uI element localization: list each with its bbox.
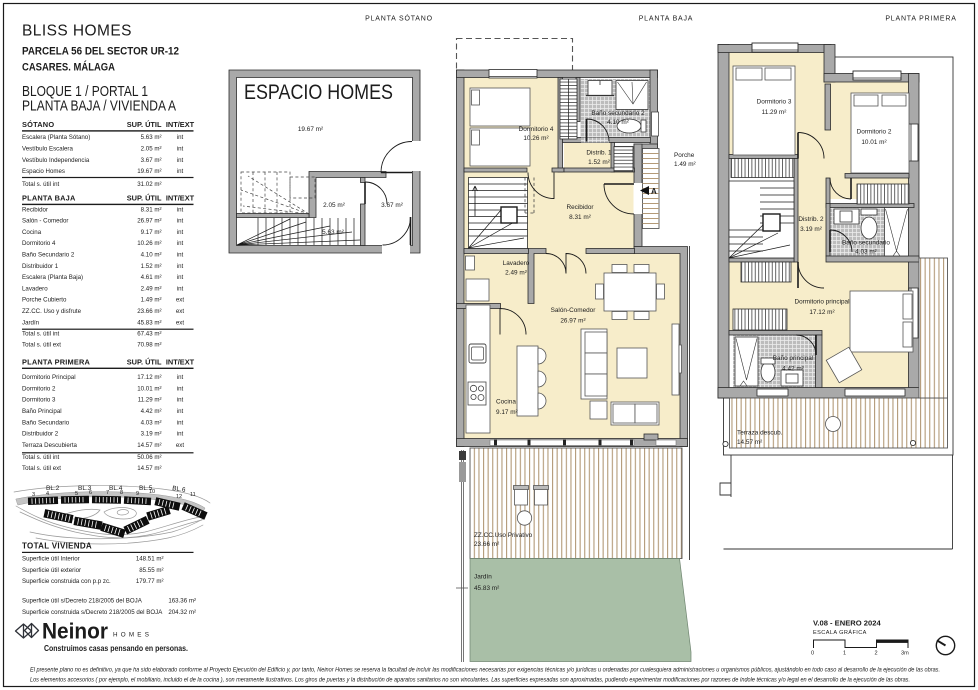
svg-text:A: A [651, 187, 657, 196]
svg-text:Lavadero: Lavadero [22, 285, 48, 292]
svg-text:int: int [177, 134, 184, 141]
svg-text:4.42 m²: 4.42 m² [141, 408, 162, 415]
svg-text:int: int [177, 218, 184, 225]
svg-text:Jardín: Jardín [474, 574, 492, 581]
svg-text:SUP. ÚTIL: SUP. ÚTIL [127, 357, 162, 366]
svg-text:int: int [177, 374, 184, 381]
svg-text:CASARES. MÁLAGA: CASARES. MÁLAGA [22, 61, 115, 74]
svg-text:8.31 m²: 8.31 m² [141, 206, 162, 213]
svg-text:PLANTA BAJA: PLANTA BAJA [639, 16, 694, 23]
svg-text:Vestíbulo Independencia: Vestíbulo Independencia [22, 157, 90, 164]
svg-text:El presente plano no es defini: El presente plano no es definitivo, ya q… [30, 667, 940, 674]
svg-text:17.12 m²: 17.12 m² [137, 374, 161, 381]
svg-text:3.67 m²: 3.67 m² [141, 157, 162, 164]
svg-text:4.61 m²: 4.61 m² [141, 274, 162, 281]
svg-text:14.57 m²: 14.57 m² [137, 465, 161, 472]
svg-text:1.52 m²: 1.52 m² [141, 263, 162, 270]
svg-text:3: 3 [32, 492, 35, 498]
svg-text:19.67 m²: 19.67 m² [137, 168, 161, 175]
svg-text:4.10 m²: 4.10 m² [141, 252, 162, 259]
svg-text:Porche Cubierto: Porche Cubierto [22, 297, 67, 304]
svg-text:Salón - Comedor: Salón - Comedor [22, 218, 68, 225]
svg-text:26.97 m²: 26.97 m² [137, 218, 161, 225]
svg-text:PLANTA BAJA: PLANTA BAJA [22, 194, 76, 203]
svg-text:BL.2: BL.2 [46, 485, 60, 492]
svg-text:Superficie construida s/Decret: Superficie construida s/Decreto 218/2005… [22, 609, 163, 616]
svg-text:4.03 m²: 4.03 m² [141, 419, 162, 426]
svg-text:10.01 m²: 10.01 m² [137, 385, 161, 392]
svg-text:31.02 m²: 31.02 m² [137, 181, 161, 188]
svg-text:11: 11 [190, 492, 196, 498]
svg-text:Cocina: Cocina [496, 399, 516, 406]
svg-text:ZZ.CC.Uso Privativo: ZZ.CC.Uso Privativo [474, 532, 533, 539]
svg-text:BLISS HOMES: BLISS HOMES [22, 23, 132, 40]
svg-text:2.05 m²: 2.05 m² [141, 145, 162, 152]
svg-text:V.08 - ENERO 2024: V.08 - ENERO 2024 [813, 619, 881, 628]
svg-text:Escalera (Planta Baja): Escalera (Planta Baja) [22, 274, 83, 281]
svg-text:SUP. ÚTIL: SUP. ÚTIL [127, 120, 162, 129]
svg-text:3.19 m²: 3.19 m² [141, 431, 162, 438]
svg-text:50.06 m²: 50.06 m² [137, 454, 161, 461]
svg-text:Baño secundario: Baño secundario [842, 240, 890, 247]
svg-text:Total s. útil ext: Total s. útil ext [22, 342, 61, 349]
svg-text:11.29 m²: 11.29 m² [762, 109, 787, 116]
svg-text:PLANTA BAJA / VIVIENDA A: PLANTA BAJA / VIVIENDA A [22, 99, 176, 115]
svg-text:8.31 m²: 8.31 m² [569, 214, 591, 221]
svg-text:Distrib. 2: Distrib. 2 [798, 216, 824, 223]
svg-text:Vestíbulo Escalera: Vestíbulo Escalera [22, 145, 73, 152]
svg-text:Total s. útil ext: Total s. útil ext [22, 465, 61, 472]
svg-text:5.63 m²: 5.63 m² [322, 229, 344, 236]
svg-text:Terraza Descubierta: Terraza Descubierta [22, 442, 78, 449]
svg-text:45.83 m²: 45.83 m² [137, 319, 161, 326]
svg-text:Distribuidor 2: Distribuidor 2 [22, 431, 59, 438]
svg-text:12: 12 [176, 494, 182, 500]
svg-text:Distribuidor 1: Distribuidor 1 [22, 263, 59, 270]
svg-text:Superficie útil Interior: Superficie útil Interior [22, 556, 80, 563]
svg-text:4.03 m²: 4.03 m² [855, 249, 877, 256]
svg-text:0: 0 [811, 651, 814, 657]
svg-text:17.12 m²: 17.12 m² [809, 309, 834, 316]
svg-text:Baño Secundario: Baño Secundario [22, 419, 70, 426]
svg-text:4.10 m²: 4.10 m² [607, 119, 629, 126]
svg-text:2: 2 [875, 651, 878, 657]
svg-text:Construimos casas pensando en: Construimos casas pensando en personas. [44, 644, 188, 653]
svg-text:int: int [177, 431, 184, 438]
svg-text:BL.3: BL.3 [78, 485, 92, 492]
svg-text:67.43 m²: 67.43 m² [137, 330, 161, 337]
svg-text:204.32 m²: 204.32 m² [168, 609, 196, 616]
svg-text:Baño Principal: Baño Principal [22, 408, 62, 415]
svg-text:2.49 m²: 2.49 m² [141, 285, 162, 292]
svg-text:Terraza descub.: Terraza descub. [737, 430, 783, 437]
svg-text:ext: ext [176, 308, 184, 315]
svg-text:3.67 m²: 3.67 m² [381, 202, 403, 209]
svg-text:14.57 m²: 14.57 m² [737, 439, 762, 446]
svg-text:int: int [177, 157, 184, 164]
svg-text:Dormitorio 3: Dormitorio 3 [757, 99, 792, 106]
svg-text:Dormitorio principal: Dormitorio principal [794, 299, 849, 306]
svg-text:Dormitorio 2: Dormitorio 2 [857, 129, 892, 136]
svg-text:45.83 m²: 45.83 m² [474, 585, 499, 592]
svg-text:BL.5: BL.5 [139, 485, 153, 492]
svg-text:Superficie útil exterior: Superficie útil exterior [22, 567, 81, 574]
svg-text:Porche: Porche [674, 152, 695, 159]
svg-text:3.19 m²: 3.19 m² [800, 226, 822, 233]
svg-text:Los elementos accesorios ( po: Los elementos accesorios ( por ejemplo, … [30, 677, 910, 684]
svg-text:Dormitorio 3: Dormitorio 3 [22, 397, 56, 404]
svg-text:BL.4: BL.4 [109, 485, 123, 492]
svg-text:2.49 m²: 2.49 m² [505, 270, 527, 277]
svg-text:9.17 m²: 9.17 m² [141, 229, 162, 236]
svg-text:70.98 m²: 70.98 m² [137, 342, 161, 349]
svg-text:int: int [177, 240, 184, 247]
svg-text:HOMES: HOMES [113, 632, 152, 639]
svg-text:int: int [177, 285, 184, 292]
svg-text:Superficie construida con p.p: Superficie construida con p.p zc. [22, 578, 111, 585]
svg-text:Dormitorio 2: Dormitorio 2 [22, 385, 56, 392]
svg-text:Dormitorio Principal: Dormitorio Principal [22, 374, 76, 381]
svg-text:148.51 m²: 148.51 m² [136, 556, 164, 563]
svg-text:PARCELA 56 DEL SECTOR UR-12: PARCELA 56 DEL SECTOR UR-12 [22, 46, 179, 58]
svg-text:int: int [177, 274, 184, 281]
svg-text:10.26 m²: 10.26 m² [137, 240, 161, 247]
svg-text:5.63 m²: 5.63 m² [141, 134, 162, 141]
svg-text:int: int [177, 385, 184, 392]
svg-text:int: int [177, 408, 184, 415]
svg-text:ext: ext [176, 319, 184, 326]
svg-text:INT/EXT: INT/EXT [166, 194, 195, 203]
svg-text:23.66 m²: 23.66 m² [474, 541, 499, 548]
svg-text:10.26 m²: 10.26 m² [523, 135, 548, 142]
svg-text:SÓTANO: SÓTANO [22, 120, 54, 129]
svg-text:9.17 m²: 9.17 m² [496, 409, 518, 416]
svg-text:Salón-Comedor: Salón-Comedor [551, 307, 597, 314]
svg-text:int: int [177, 229, 184, 236]
svg-text:Dormitorio 4: Dormitorio 4 [519, 126, 554, 133]
svg-text:ZZ.CC. Uso y disfrute: ZZ.CC. Uso y disfrute [22, 308, 82, 315]
svg-text:14.57 m²: 14.57 m² [137, 442, 161, 449]
svg-text:ESPACIO HOMES: ESPACIO HOMES [244, 80, 393, 104]
svg-text:PLANTA PRIMERA: PLANTA PRIMERA [22, 357, 91, 366]
svg-text:Baño principal: Baño principal [773, 355, 814, 362]
svg-text:26.97 m²: 26.97 m² [560, 318, 585, 325]
svg-text:Neinor: Neinor [42, 619, 108, 644]
svg-text:SUP. ÚTIL: SUP. ÚTIL [127, 194, 162, 203]
svg-text:PLANTA PRIMERA: PLANTA PRIMERA [885, 16, 956, 23]
svg-text:Jardín: Jardín [22, 319, 40, 326]
svg-text:Superficie útil s/Decreto 218/: Superficie útil s/Decreto 218/2005 del B… [22, 598, 143, 605]
svg-text:23.66 m²: 23.66 m² [137, 308, 161, 315]
svg-text:1: 1 [843, 651, 846, 657]
svg-text:int: int [177, 206, 184, 213]
svg-text:Total s. útil int: Total s. útil int [22, 454, 59, 461]
svg-text:179.77 m²: 179.77 m² [136, 578, 164, 585]
svg-text:Total s. útil int: Total s. útil int [22, 330, 59, 337]
svg-text:ext: ext [176, 442, 184, 449]
svg-text:Escalera (Planta Sótano): Escalera (Planta Sótano) [22, 134, 90, 141]
svg-text:19.67 m²: 19.67 m² [298, 126, 323, 133]
svg-text:TOTAL VIVIENDA: TOTAL VIVIENDA [22, 542, 92, 551]
svg-text:INT/EXT: INT/EXT [166, 357, 195, 366]
svg-text:Total s. útil int: Total s. útil int [22, 181, 59, 188]
svg-text:2.05 m²: 2.05 m² [323, 202, 345, 209]
svg-text:PLANTA SÓTANO: PLANTA SÓTANO [365, 14, 433, 23]
svg-text:Lavadero: Lavadero [503, 260, 530, 267]
svg-text:Distrib. 1: Distrib. 1 [586, 150, 612, 157]
svg-text:int: int [177, 252, 184, 259]
svg-text:3m: 3m [901, 651, 909, 657]
svg-text:int: int [177, 145, 184, 152]
svg-text:Baño Secundario 2: Baño Secundario 2 [22, 252, 75, 259]
svg-text:int: int [177, 397, 184, 404]
svg-text:int: int [177, 419, 184, 426]
svg-text:1.49 m²: 1.49 m² [141, 297, 162, 304]
svg-text:Espacio Homes: Espacio Homes [22, 168, 65, 175]
svg-text:INT/EXT: INT/EXT [166, 120, 195, 129]
svg-text:10.01 m²: 10.01 m² [861, 139, 886, 146]
svg-text:85.55 m²: 85.55 m² [139, 567, 163, 574]
svg-text:1.49 m²: 1.49 m² [674, 161, 696, 168]
svg-text:Cocina: Cocina [22, 229, 42, 236]
svg-text:ESCALA GRÁFICA: ESCALA GRÁFICA [813, 629, 867, 636]
svg-text:163.36 m²: 163.36 m² [168, 598, 196, 605]
svg-text:int: int [177, 168, 184, 175]
svg-text:4.42 m²: 4.42 m² [782, 366, 804, 373]
svg-text:int: int [177, 263, 184, 270]
svg-text:Recibidor: Recibidor [567, 204, 595, 211]
svg-text:1.52 m²: 1.52 m² [588, 159, 610, 166]
svg-text:ext: ext [176, 297, 184, 304]
svg-text:11.29 m²: 11.29 m² [138, 397, 162, 404]
svg-text:Recibidor: Recibidor [22, 206, 48, 213]
svg-text:Baño secundario 2: Baño secundario 2 [591, 110, 645, 117]
svg-text:Dormitorio 4: Dormitorio 4 [22, 240, 56, 247]
